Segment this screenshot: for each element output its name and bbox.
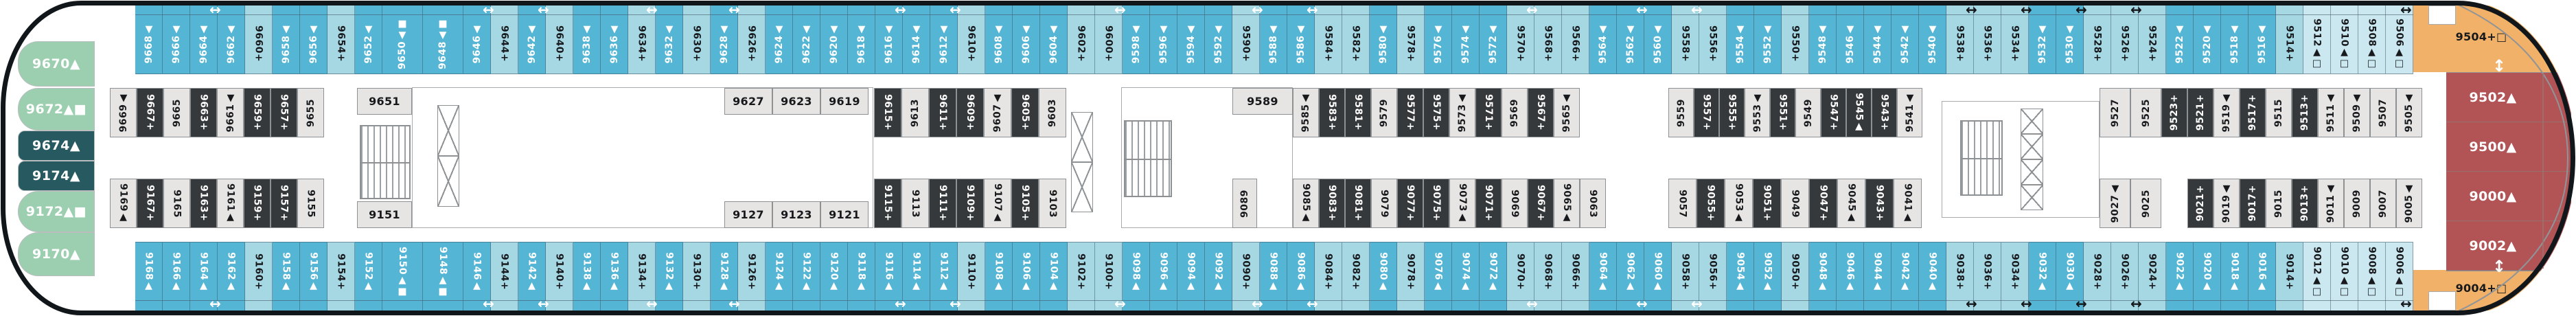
- cabin-label: 9140+: [555, 253, 564, 290]
- cabin-9611: 9611+: [929, 88, 956, 137]
- elevator: [437, 105, 459, 156]
- cabin-9663: 9663+: [190, 88, 217, 137]
- cabin-label: 9661▲: [226, 93, 235, 132]
- cabin-9624: 9624▲: [766, 5, 793, 74]
- cabin-9049: 9049: [1781, 179, 1809, 228]
- cabin-9546: 9546▲: [1837, 5, 1864, 74]
- cabin-9557: 9557+: [1694, 88, 1719, 137]
- cabin-label: 9094▲: [1186, 252, 1196, 291]
- cabin-label: 9630+: [692, 25, 702, 62]
- cabin-label: 9543+: [1880, 94, 1889, 131]
- cabin-9043: 9043+: [1865, 179, 1894, 228]
- cabin-9550: 9550+: [1782, 5, 1809, 74]
- cabin-9011: 9011▲: [2318, 179, 2344, 228]
- cabin-label: 9098▲: [1131, 252, 1141, 291]
- cabin-9569: 9569: [1502, 88, 1528, 137]
- cabin-label: 9144+: [500, 253, 509, 290]
- cabin-label: 9556+: [1708, 25, 1718, 62]
- cabin-9522: 9522▲: [2166, 5, 2194, 74]
- cabin-label: 9106▲: [1022, 252, 1031, 291]
- cabin-label: 9521+: [2196, 94, 2205, 131]
- connecting-arrow-icon: ↔: [1307, 297, 1318, 311]
- cabin-label: 9546▲: [1845, 24, 1855, 63]
- cabin-label: 9128▲: [720, 252, 729, 291]
- cabin-label: 9056+: [1708, 253, 1718, 290]
- connecting-arrow-icon: ↔: [2021, 297, 2032, 311]
- cabin-label: 9602+: [1077, 25, 1086, 62]
- cabin-label: 9169▲: [119, 183, 128, 223]
- cabin-label: 9590+: [1241, 25, 1251, 62]
- cabin-label: 9525: [2141, 99, 2151, 127]
- cabin-label: 9574▲: [1461, 24, 1471, 63]
- cabin-label: 9581+: [1353, 94, 1363, 131]
- cabin-label: 9086▲: [1296, 252, 1306, 291]
- cabin-9659: 9659+: [244, 88, 271, 137]
- cabin-9009: 9009: [2344, 179, 2370, 228]
- cabin-label: 9530▲: [2065, 24, 2075, 63]
- cabin-label: 9541▲: [1905, 93, 1915, 132]
- cabin-label: 9013+: [2300, 185, 2310, 221]
- cabin-9073: 9073▲: [1449, 179, 1475, 228]
- cabin-label: 9045▲: [1847, 183, 1856, 223]
- cabin-9672: 9672▲■: [18, 88, 95, 131]
- cabin-label: 9668▲: [144, 24, 154, 63]
- cabin-9667: 9667+: [137, 88, 163, 137]
- cabin-9589: 9589: [1232, 88, 1293, 115]
- cabin-label: 9075+: [1431, 185, 1441, 221]
- connecting-arrow-icon: ↔: [1636, 297, 1648, 311]
- cabin-label: 9011▲: [2326, 183, 2336, 223]
- cabin-label: 9024+: [2148, 253, 2157, 290]
- cabin-9560: 9560▲: [1644, 5, 1672, 74]
- cabin-9623: 9623: [772, 88, 820, 115]
- cabin-9622: 9622▲: [793, 5, 820, 74]
- connecting-arrow-icon: ↔: [2075, 3, 2087, 16]
- cabin-label: 9536+: [1983, 25, 1992, 62]
- cabin-9619: 9619: [820, 88, 869, 115]
- cabin-9669: 9669▲: [110, 88, 137, 137]
- cabin-label: 9048▲: [1818, 252, 1828, 291]
- cabin-9523: 9523+: [2161, 88, 2187, 137]
- cabin-9556: 9556+: [1699, 5, 1727, 74]
- cabin-label: 9050+: [1791, 253, 1800, 290]
- cabin-9071: 9071+: [1475, 179, 1502, 228]
- cabin-9559: 9559: [1668, 88, 1694, 137]
- cabin-label: 9034+: [2010, 253, 2020, 290]
- cabin-label: 9103: [1048, 190, 1057, 218]
- cabin-9109: 9109+: [956, 179, 984, 228]
- cabin-9169: 9169▲: [110, 179, 137, 228]
- cabin-label: 9655: [306, 99, 316, 127]
- cabin-9571: 9571+: [1475, 88, 1502, 137]
- cabin-label: 9638▲: [582, 24, 592, 63]
- cabin-label: 9006▲□: [2395, 247, 2404, 297]
- cabin-9027: 9027▲: [2100, 179, 2130, 228]
- connecting-arrow-icon: ↔: [2021, 3, 2032, 16]
- cabin-label: 9640+: [555, 25, 564, 62]
- cabin-9077: 9077+: [1397, 179, 1423, 228]
- elevator: [2021, 109, 2043, 134]
- cabin-label: 9500▲: [2470, 139, 2517, 155]
- cabin-label: 9672▲■: [26, 102, 87, 117]
- cabin-label: 9659+: [253, 94, 262, 131]
- deck-plan: 9502▲9500▲9000▲9002▲9504+□9004+□↕↕9670▲9…: [0, 0, 2576, 316]
- cabin-label: 9167+: [146, 185, 155, 221]
- cabin-label: 9540▲: [1928, 24, 1937, 63]
- elevator: [437, 156, 459, 207]
- cabin-9548: 9548▲: [1809, 5, 1837, 74]
- cabin-label: 9165: [172, 190, 182, 218]
- cabin-label: 9158▲: [281, 252, 291, 291]
- cabin-label: 9150▲■: [398, 247, 407, 297]
- cabin-9588: 9588▲: [1260, 5, 1287, 74]
- cabin-9605: 9605+: [1011, 88, 1039, 137]
- cabin-9555: 9555+: [1719, 88, 1745, 137]
- cabin-label: 9511▲: [2326, 93, 2336, 132]
- cabin-label: 9130+: [692, 253, 702, 290]
- cabin-label: 9062▲: [1626, 252, 1635, 291]
- cabin-9512: 9512▲□: [2303, 5, 2331, 74]
- cabin-label: 9166▲: [172, 252, 181, 291]
- cabin-label: 9620▲: [829, 24, 839, 63]
- connecting-arrow-icon: ↔: [209, 3, 221, 16]
- cabin-label: 9505▲: [2404, 93, 2414, 132]
- cabin-label: 9588▲: [1269, 24, 1278, 63]
- cabin-9053: 9053▲: [1725, 179, 1753, 228]
- stairs: [360, 125, 411, 199]
- cabin-9585: 9585▲: [1293, 88, 1319, 137]
- cabin-label: 9055+: [1706, 185, 1716, 221]
- cabin-9553: 9553▲: [1745, 88, 1770, 137]
- elevator: [2021, 159, 2043, 185]
- cabin-label: 9564▲: [1598, 24, 1608, 63]
- cabin-label: 9168▲: [144, 252, 154, 291]
- cabin-9528: 9528+: [2084, 5, 2111, 74]
- cabin-9170: 9170▲: [18, 232, 95, 276]
- connecting-arrow-icon: ↔: [1114, 3, 1126, 16]
- cabin-label: 9132▲: [665, 252, 674, 291]
- cabin-label: 9040▲: [1928, 252, 1937, 291]
- cabin-label: 9615+: [883, 94, 893, 131]
- cabin-label: 9522▲: [2175, 24, 2185, 63]
- cabin-label: 9028+: [2093, 253, 2102, 290]
- cabin-9107: 9107▲: [984, 179, 1011, 228]
- cabin-9632: 9632▲: [656, 5, 683, 74]
- cabin-label: 9550+: [1791, 25, 1800, 62]
- cabin-label: 9613: [910, 99, 920, 127]
- cabin-9085: 9085▲: [1293, 179, 1319, 228]
- cabin-label: 9568+: [1543, 25, 1553, 62]
- cabin-label: 9586▲: [1296, 24, 1306, 63]
- cabin-label: 9071+: [1484, 185, 1493, 221]
- connecting-arrow-icon: ↔: [538, 3, 549, 16]
- cabin-9514: 9514+: [2276, 5, 2303, 74]
- cabin-9045: 9045▲: [1837, 179, 1865, 228]
- cabin-9662: 9662▲: [218, 5, 245, 74]
- connecting-arrow-icon: ↔: [1691, 3, 1703, 16]
- cabin-9051: 9051+: [1753, 179, 1781, 228]
- cabin-9566: 9566+: [1562, 5, 1589, 74]
- stairs: [1124, 120, 1172, 197]
- cabin-9517: 9517+: [2240, 88, 2266, 137]
- cabin-9527: 9527: [2100, 88, 2130, 137]
- cabin-label: 9060▲: [1653, 252, 1663, 291]
- connecting-arrow-icon: ↔: [950, 3, 961, 16]
- cabin-label: 9136▲: [610, 252, 619, 291]
- cabin-9668: 9668▲: [135, 5, 163, 74]
- cabin-label: 9066+: [1571, 253, 1580, 290]
- cabin-9536: 9536+: [1974, 5, 2001, 74]
- cabin-label: 9032▲: [2038, 252, 2047, 291]
- cabin-label: 9078+: [1406, 253, 1416, 290]
- cabin-9515: 9515: [2266, 88, 2292, 137]
- cabin-label: 9667+: [146, 94, 155, 131]
- cabin-label: 9073▲: [1458, 183, 1467, 223]
- cabin-9582: 9582+: [1342, 5, 1370, 74]
- cabin-label: 9648▲■: [438, 19, 448, 69]
- cabin-9525: 9525: [2130, 88, 2161, 137]
- cabin-9630: 9630+: [683, 5, 711, 74]
- cabin-9620: 9620▲: [820, 5, 848, 74]
- cabin-9151: 9151: [357, 201, 412, 228]
- cabin-9069: 9069: [1502, 179, 1528, 228]
- cabin-9543: 9543+: [1872, 88, 1897, 137]
- connecting-arrow-icon: ↔: [2400, 297, 2412, 311]
- cabin-9567: 9567+: [1528, 88, 1554, 137]
- cabin-9063: 9063: [1580, 179, 1606, 228]
- cabin-9580: 9580▲: [1370, 5, 1397, 74]
- cabin-9165: 9165: [163, 179, 190, 228]
- cabin-9660: 9660+: [245, 5, 273, 74]
- cabin-label: 9105+: [1020, 185, 1030, 221]
- cabin-9636: 9636▲: [601, 5, 628, 74]
- connecting-arrow-icon: ↔: [1307, 3, 1318, 16]
- cabin-label: 9666▲: [172, 24, 181, 63]
- cabin-label: 9019▲: [2222, 183, 2231, 223]
- cabin-9174: 9174▲: [18, 161, 95, 191]
- cabin-label: 9084+: [1324, 253, 1333, 290]
- cabin-9161: 9161▲: [217, 179, 244, 228]
- cabin-label: 9051+: [1762, 185, 1772, 221]
- connecting-arrow-icon: ↔: [1966, 3, 1977, 16]
- cabin-label: 9104▲: [1049, 252, 1059, 291]
- cabin-label: 9582+: [1351, 25, 1361, 62]
- cabin-label: 9016▲: [2257, 252, 2267, 291]
- cabin-label: 9600+: [1104, 25, 1114, 62]
- cabin-label: 9020▲: [2203, 252, 2212, 291]
- cabin-9584: 9584+: [1315, 5, 1342, 74]
- cabin-9113: 9113: [901, 179, 929, 228]
- cabin-9658: 9658▲: [273, 5, 300, 74]
- cabin-label: 9650▲■: [398, 19, 407, 69]
- corridor-notch: [2428, 5, 2456, 25]
- cabin-label: 9068+: [1543, 253, 1553, 290]
- cabin-label: 9008▲□: [2367, 247, 2377, 297]
- cabin-label: 9142▲: [527, 252, 537, 291]
- cabin-label: 9046▲: [1845, 252, 1855, 291]
- cabin-label: 9527: [2111, 99, 2120, 127]
- cabin-label: 9507: [2378, 99, 2388, 127]
- cabin-label: 9622▲: [802, 24, 812, 63]
- cabin-9666: 9666▲: [163, 5, 190, 74]
- cabin-label: 9604▲: [1049, 24, 1059, 63]
- cabin-label: 9164▲: [199, 252, 209, 291]
- cabin-label: 9654+: [336, 25, 346, 62]
- cabin-label: 9000▲: [2470, 189, 2517, 204]
- cabin-label: 9658▲: [281, 24, 291, 63]
- cabin-9665: 9665: [163, 88, 190, 137]
- cabin-9519: 9519▲: [2213, 88, 2240, 137]
- cabin-9121: 9121: [820, 201, 869, 228]
- cabin-9541: 9541▲: [1897, 88, 1922, 137]
- cabin-9505: 9505▲: [2396, 88, 2422, 137]
- cabin-9674: 9674▲: [18, 131, 95, 161]
- cabin-9013: 9013+: [2292, 179, 2318, 228]
- cabin-9067: 9067+: [1528, 179, 1554, 228]
- cabin-label: 9528+: [2093, 25, 2102, 62]
- cabin-label: 9607▲: [993, 93, 1002, 132]
- cabin-label: 9155: [306, 190, 316, 218]
- cabin-label: 9534+: [2010, 25, 2020, 62]
- connecting-arrow-icon: ↔: [1252, 297, 1263, 311]
- cabin-label: 9043+: [1875, 185, 1885, 221]
- cabin-9000: 9000▲: [2446, 172, 2571, 221]
- cabin-label: 9554▲: [1736, 24, 1745, 63]
- cabin-9614: 9614▲: [903, 5, 930, 74]
- cabin-label: 9122▲: [802, 252, 812, 291]
- cabin-label: 9172▲■: [26, 204, 87, 219]
- cabin-label: 9102+: [1077, 253, 1086, 290]
- cabin-label: 9632▲: [665, 24, 674, 63]
- cabin-label: 9161▲: [226, 183, 235, 223]
- cabin-label: 9551+: [1778, 94, 1788, 131]
- cabin-label: 9548▲: [1818, 24, 1828, 63]
- connecting-arrow-icon: ↔: [728, 297, 740, 311]
- cabin-9594: 9594▲: [1177, 5, 1205, 74]
- cabin-9579: 9579: [1371, 88, 1397, 137]
- cabin-label: 9616▲: [884, 24, 894, 63]
- cabin-label: 9156▲: [309, 252, 319, 291]
- stairs: [1960, 120, 2003, 196]
- cabin-label: 9159+: [253, 185, 262, 221]
- cabin-label: 9015: [2274, 190, 2284, 218]
- cabin-9019: 9019▲: [2213, 179, 2240, 228]
- cabin-9554: 9554▲: [1727, 5, 1754, 74]
- cabin-label: 9088▲: [1269, 252, 1278, 291]
- cabin-label: 9584+: [1324, 25, 1333, 62]
- connecting-arrow-icon: ↔: [483, 3, 494, 16]
- cabin-label: 9532▲: [2038, 24, 2047, 63]
- connecting-arrow-icon: ↔: [646, 3, 658, 16]
- cabin-9532: 9532▲: [2029, 5, 2056, 74]
- cabin-label: 9549: [1804, 99, 1813, 127]
- cabin-label: 9538+: [1955, 25, 1965, 62]
- cabin-label: 9662▲: [227, 24, 236, 63]
- cabin-label: 9127: [733, 208, 764, 221]
- cabin-label: 9623: [781, 95, 812, 108]
- connecting-arrow-icon: ↔: [728, 3, 740, 16]
- cabin-label: 9157+: [279, 185, 289, 221]
- cabin-9521: 9521+: [2187, 88, 2213, 137]
- bow-inside-cabin-block: 9502▲9500▲9000▲9002▲: [2446, 72, 2571, 271]
- cabin-label: 9058+: [1681, 253, 1690, 290]
- cabin-9065: 9065▲: [1554, 179, 1580, 228]
- cabin-9655: 9655: [297, 88, 324, 137]
- cabin-9551: 9551+: [1770, 88, 1795, 137]
- cabin-label: 9134+: [637, 253, 647, 290]
- cabin-label: 9160+: [254, 253, 264, 290]
- cabin-label: 9560▲: [1653, 24, 1663, 63]
- cabin-9610: 9610+: [958, 5, 985, 74]
- cabin-label: 9057: [1678, 190, 1688, 218]
- cabin-9507: 9507: [2370, 88, 2396, 137]
- cabin-label: 9674▲: [32, 138, 80, 153]
- cabin-label: 9063: [1588, 190, 1598, 218]
- elevator: [2021, 134, 2043, 159]
- cabin-label: 9642▲: [527, 24, 537, 63]
- cabin-label: 9036+: [1983, 253, 1992, 290]
- cabin-9657: 9657+: [271, 88, 297, 137]
- cabin-label: 9553▲: [1753, 93, 1762, 132]
- cabin-9017: 9017+: [2240, 179, 2266, 228]
- cabin-label: 9657+: [279, 94, 289, 131]
- cabin-9603: 9603: [1039, 88, 1066, 137]
- cabin-label: 9109+: [965, 185, 975, 221]
- cabin-label: 9116▲: [884, 252, 894, 291]
- cabin-label: 9108▲: [994, 252, 1004, 291]
- cabin-label: 9096▲: [1159, 252, 1169, 291]
- cabin-label: 9663+: [199, 94, 209, 131]
- cabin-label: 9052▲: [1763, 252, 1773, 291]
- cabin-9511: 9511▲: [2318, 88, 2344, 137]
- cabin-9516: 9516▲: [2249, 5, 2276, 74]
- cabin-label: 9118▲: [857, 252, 866, 291]
- cabin-label: 9555+: [1727, 94, 1737, 131]
- cabin-9549: 9549: [1795, 88, 1821, 137]
- cabin-label: 9083+: [1327, 185, 1337, 221]
- cabin-label: 9618▲: [857, 24, 866, 63]
- cabin-label: 9170▲: [32, 247, 80, 262]
- connecting-arrow-icon: ↔: [950, 297, 961, 311]
- cabin-9618: 9618▲: [848, 5, 875, 74]
- cabin-9055: 9055+: [1697, 179, 1725, 228]
- cabin-label: 9651: [369, 95, 400, 108]
- cabin-label: 9038+: [1955, 253, 1965, 290]
- cabin-label: 9151: [369, 208, 400, 221]
- cabin-label: 9049: [1791, 190, 1800, 218]
- cabin-label: 9577+: [1405, 94, 1415, 131]
- cabin-label: 9089: [1240, 190, 1250, 218]
- cabin-label: 9646▲: [472, 24, 482, 63]
- cabin-label: 9010▲□: [2340, 247, 2349, 297]
- cabin-label: 9162▲: [227, 252, 236, 291]
- cabin-label: 9080▲: [1379, 252, 1388, 291]
- cabin-9047: 9047+: [1809, 179, 1837, 228]
- cabin-label: 9664▲: [199, 24, 209, 63]
- cabin-label: 9603: [1048, 99, 1057, 127]
- deck-plan-interior: 9502▲9500▲9000▲9002▲9504+□9004+□↕↕9670▲9…: [0, 0, 2576, 316]
- elevator: [1071, 112, 1093, 162]
- cabin-label: 9557+: [1702, 94, 1712, 131]
- cabin-label: 9027▲: [2111, 183, 2120, 223]
- cabin-label: 9552▲: [1763, 24, 1773, 63]
- cabin-label: 9148▲■: [438, 247, 448, 297]
- cabin-label: 9569: [1510, 99, 1519, 127]
- cabin-label: 9110+: [967, 253, 976, 290]
- cabin-9513: 9513+: [2292, 88, 2318, 137]
- cabin-9638: 9638▲: [573, 5, 601, 74]
- cabin-9041: 9041▲: [1894, 179, 1922, 228]
